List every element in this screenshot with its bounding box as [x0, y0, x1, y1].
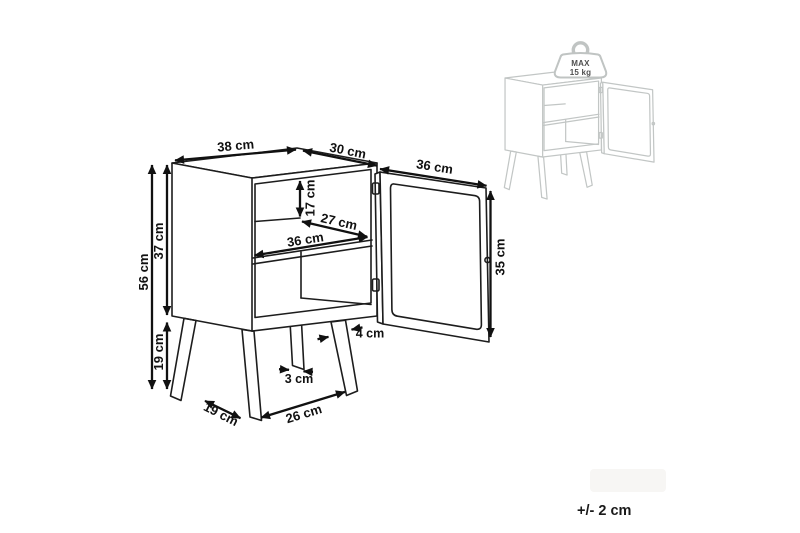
- label-front-leg-spacing: 26 cm: [284, 401, 324, 426]
- label-total-height: 56 cm: [136, 254, 151, 291]
- label-upper-compartment-height: 17 cm: [303, 180, 318, 217]
- label-side-leg-spacing: 19 cm: [201, 399, 241, 429]
- dim-arrow-leg-foot-left: [279, 369, 289, 370]
- dim-arrow-leg-top-left: [318, 337, 329, 339]
- max-load-inset: MAX 15 kg: [504, 43, 654, 199]
- max-load-line2: 15 kg: [570, 68, 591, 77]
- watermark-smudge: [590, 469, 666, 492]
- main-cabinet-drawing: [171, 148, 491, 421]
- max-load-line1: MAX: [571, 59, 590, 68]
- label-body-height: 37 cm: [151, 223, 166, 260]
- furniture-dimension-diagram: MAX 15 kg 38 cm 30 cm 36 cm 17 cm 27 cm …: [0, 0, 800, 533]
- label-door-height: 35 cm: [493, 239, 508, 276]
- diagram-canvas: MAX 15 kg 38 cm 30 cm 36 cm 17 cm 27 cm …: [0, 0, 800, 533]
- tolerance-note: +/- 2 cm: [577, 503, 631, 519]
- label-top-width: 38 cm: [217, 136, 255, 154]
- label-door-open-width: 36 cm: [415, 156, 454, 177]
- label-leg-top-thickness: 4 cm: [356, 327, 385, 341]
- label-leg-foot-thickness: 3 cm: [285, 372, 314, 386]
- label-leg-height: 19 cm: [151, 334, 166, 371]
